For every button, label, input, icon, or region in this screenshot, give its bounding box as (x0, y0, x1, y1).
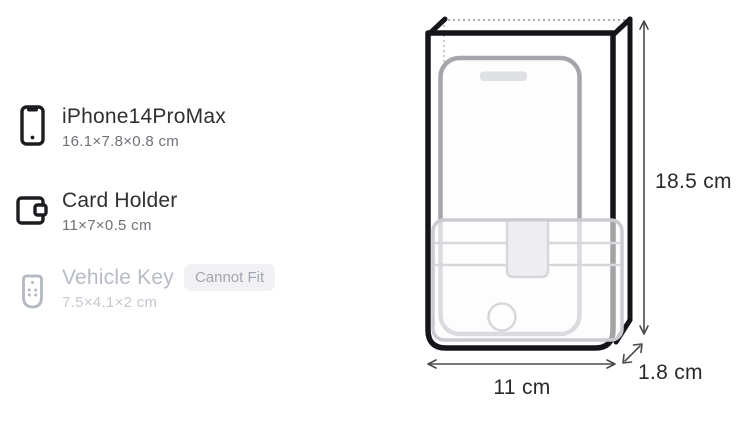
depth-dimension-label: 1.8 cm (638, 361, 703, 385)
item-name: Card Holder (62, 188, 177, 214)
list-item-card-holder: Card Holder 11×7×0.5 cm (14, 188, 177, 235)
item-name: iPhone14ProMax (62, 104, 226, 130)
card-holder-icon (14, 194, 50, 227)
key-fob-icon (14, 273, 50, 310)
list-item-iphone: iPhone14ProMax 16.1×7.8×0.8 cm (14, 104, 226, 151)
width-dimension-arrow (428, 360, 615, 368)
height-dimension-label: 18.5 cm (655, 170, 732, 194)
smartphone-icon (14, 104, 50, 147)
case-back-edges (444, 20, 628, 62)
height-dimension-arrow (640, 21, 648, 334)
cannot-fit-badge: Cannot Fit (184, 264, 275, 291)
item-name: Vehicle Key (62, 265, 174, 291)
case-diagram: 18.5 cm 11 cm 1.8 cm (400, 0, 750, 426)
fit-check-screen: iPhone14ProMax 16.1×7.8×0.8 cm Card Hold… (0, 0, 750, 426)
item-dimensions: 7.5×4.1×2 cm (62, 294, 275, 312)
item-dimensions: 11×7×0.5 cm (62, 217, 177, 235)
card-holder-outline (433, 220, 622, 340)
item-dimensions: 16.1×7.8×0.8 cm (62, 133, 226, 151)
list-item-vehicle-key: Vehicle Key Cannot Fit 7.5×4.1×2 cm (14, 264, 275, 312)
width-dimension-label: 11 cm (460, 376, 584, 400)
